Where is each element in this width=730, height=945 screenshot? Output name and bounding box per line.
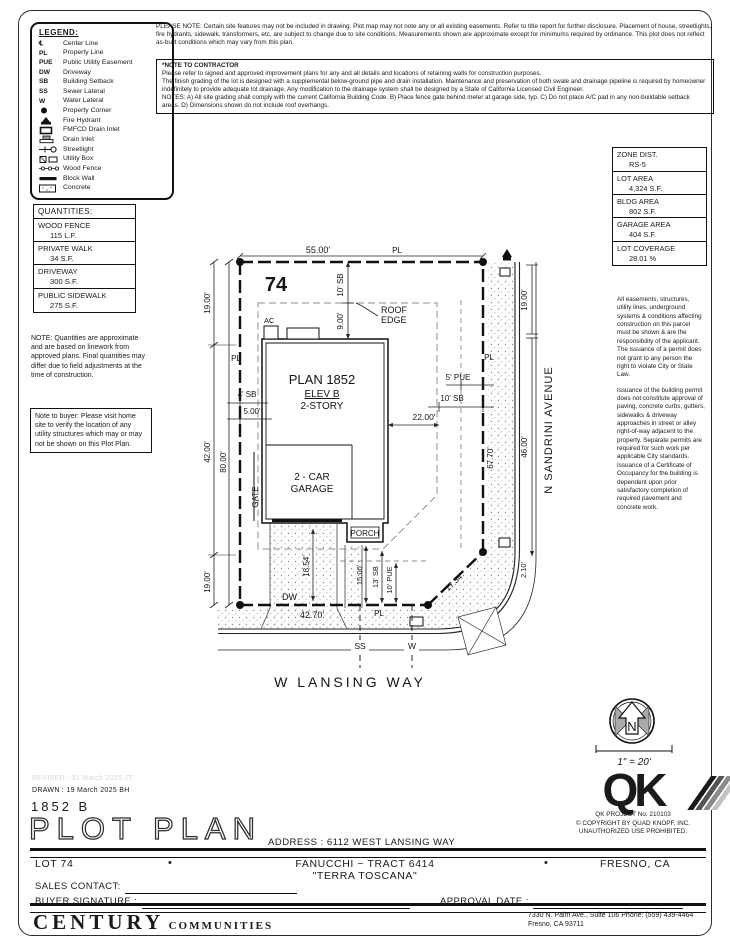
legend-box: LEGEND: ℄Center Line PLProperty Line PUE… xyxy=(30,22,174,200)
w-label: W xyxy=(408,641,416,651)
contractor-note-body: Please refer to signed and approved impr… xyxy=(162,70,708,110)
legend-item: Drain Inlet xyxy=(39,135,167,145)
gate-label: GATE xyxy=(251,486,260,507)
sb-bottom: 13' SB xyxy=(371,566,380,588)
qk-logo-stripes xyxy=(687,776,730,810)
legend-item: Wood Fence xyxy=(39,164,167,174)
legend-item: Block Wall xyxy=(39,174,167,184)
pl-label-left: PL xyxy=(231,354,241,363)
zone-row: BLDG AREA802 S.F. xyxy=(612,194,707,219)
lot-label: LOT 74 xyxy=(35,858,73,870)
legend-item: Utility Box xyxy=(39,155,167,165)
pl-label-top: PL xyxy=(392,246,402,255)
zone-row: LOT COVERAGE28.01 % xyxy=(612,241,707,266)
legend-item: ℄Center Line xyxy=(39,39,167,49)
dim-porch-pl: 15.00' xyxy=(355,564,364,585)
quantity-row: PUBLIC SIDEWALK275 S.F. xyxy=(33,288,136,313)
sb-left: 4' SB xyxy=(238,390,257,399)
title-rule-top xyxy=(30,848,706,858)
legend-item: Property Corner xyxy=(39,106,167,116)
qk-use-notice: UNAUTHORIZED USE PROHIBITED. xyxy=(558,828,708,836)
compass-n: N xyxy=(627,719,636,734)
block-wall-icon xyxy=(39,174,63,183)
legend-item: DWDriveway xyxy=(39,68,167,78)
house-footprint xyxy=(254,326,388,542)
story-label: 2-STORY xyxy=(301,401,344,412)
concrete-icon xyxy=(39,184,63,193)
contractor-note-box: *NOTE TO CONTRACTOR Please refer to sign… xyxy=(156,59,714,114)
quantity-row: PRIVATE WALK34 S.F. xyxy=(33,241,136,266)
drain-inlet-box xyxy=(500,268,510,276)
legend-item: SSSewer Lateral xyxy=(39,87,167,97)
qk-logo: QK xyxy=(603,770,664,811)
sb-right: 10' SB xyxy=(440,394,463,403)
driveway-symbol: DW xyxy=(39,69,63,77)
site-address: ADDRESS : 6112 WEST LANSING WAY xyxy=(268,837,455,848)
separator-bullet: • xyxy=(544,857,548,869)
garage-label-1: 2 - CAR xyxy=(294,472,330,483)
zone-row: LOT AREA4,324 S.F. xyxy=(612,171,707,196)
builder-address-line2: Fresno, CA 93711 xyxy=(528,920,693,929)
pue-bottom: 10' PUE xyxy=(385,566,394,593)
legend-item: WWater Lateral xyxy=(39,97,167,107)
dim-right-total: 67.70' xyxy=(486,447,495,469)
utility-box-icon xyxy=(39,155,63,164)
legend-item: Concrete xyxy=(39,183,167,193)
dim-left-top: 19.00' xyxy=(203,292,212,314)
dim-left-mid: 42.00' xyxy=(203,441,212,463)
north-compass: N 1" = 20' xyxy=(588,693,680,771)
water-symbol: W xyxy=(39,98,63,106)
legend-item: PUEPublic Utility Easement xyxy=(39,58,167,68)
dim-right-top: 19.00' xyxy=(520,289,529,311)
legal-paragraph-2: Issuance of the building permit does not… xyxy=(617,387,705,512)
ac-label: AC xyxy=(264,316,275,325)
roof-edge-leader xyxy=(356,303,378,316)
legend-item: Fire Hydrant xyxy=(39,116,167,126)
separator-bullet: • xyxy=(168,857,172,869)
dim-top: 55.00' xyxy=(306,245,331,255)
qk-block: QK QK PROJECT No. 210103 © COPYRIGHT BY … xyxy=(558,770,708,836)
legend-title: LEGEND: xyxy=(39,28,167,37)
builder-address: 7330 N. Palm Ave., Suite 106 Phone: (559… xyxy=(528,911,693,930)
zone-table: ZONE DIST.RS-5 LOT AREA4,324 S.F. BLDG A… xyxy=(612,149,707,266)
elev-label: ELEV B xyxy=(304,389,339,400)
legal-paragraph-1: All easements, structures, utility lines… xyxy=(617,296,705,380)
sewer-symbol: SS xyxy=(39,88,63,96)
contractor-note-title: *NOTE TO CONTRACTOR xyxy=(162,62,708,70)
please-note: PLEASE NOTE: Certain site features may n… xyxy=(156,23,713,48)
city-label: FRESNO, CA xyxy=(600,858,670,870)
zone-row: GARAGE AREA404 S.F. xyxy=(612,217,707,242)
roof-edge-2: EDGE xyxy=(381,315,407,325)
fmfcd-drain-inlet-icon xyxy=(39,126,63,135)
fire-hydrant-icon xyxy=(502,249,512,261)
dim-house-right: 22.00' xyxy=(413,412,436,422)
roof-offset: 9.00' xyxy=(336,312,345,330)
property-line-symbol: PL xyxy=(39,50,63,58)
sheet-title: PLOT PLAN xyxy=(29,811,262,847)
dw-label: DW xyxy=(282,592,297,602)
revised-date: REVISED : 31 March 2025 JT xyxy=(32,775,133,782)
street-name-bottom: W LANSING WAY xyxy=(274,674,426,690)
left-offset: 5.00' xyxy=(243,407,261,416)
pl-label-bottom: PL xyxy=(374,609,384,618)
brand-century: CENTURY xyxy=(33,910,164,934)
porch-label: PORCH xyxy=(351,529,380,538)
dim-bottom: 42.70' xyxy=(300,610,325,620)
fire-hydrant-icon xyxy=(39,116,63,125)
setback-symbol: SB xyxy=(39,78,63,86)
legal-text: All easements, structures, utility lines… xyxy=(617,296,705,519)
quantities-table: QUANTITIES: WOOD FENCE115 L.F. PRIVATE W… xyxy=(33,206,136,313)
legend-item: PLProperty Line xyxy=(39,49,167,59)
roof-edge-1: ROOF xyxy=(381,305,408,315)
quantities-note: NOTE: Quantities are approximate and are… xyxy=(31,334,147,380)
garage-label-2: GARAGE xyxy=(291,484,334,495)
ss-label: SS xyxy=(354,641,366,651)
dim-left-total: 80.00' xyxy=(219,451,228,473)
plot-drawing: 74 55.00' PL PL PL PL 19.00' 42.00' 19.0… xyxy=(185,243,565,700)
plan-label: PLAN 1852 xyxy=(289,372,356,387)
lot-number: 74 xyxy=(265,274,288,296)
drain-inlet-icon xyxy=(39,135,63,145)
qk-copyright: © COPYRIGHT BY QUAD KNOPF, INC. xyxy=(558,820,708,828)
builder-address-line1: 7330 N. Palm Ave., Suite 106 Phone: (559… xyxy=(528,911,693,920)
builder-brand: CENTURY COMMUNITIES xyxy=(33,910,273,935)
streetlight-icon xyxy=(39,145,63,154)
tract-label: FANUCCHI ~ TRACT 6414 xyxy=(250,858,480,870)
zone-row: ZONE DIST.RS-5 xyxy=(612,147,707,172)
dim-corner-curb: 2.10' xyxy=(519,561,528,578)
legend-item: SBBuilding Setback xyxy=(39,77,167,87)
water-meter-box xyxy=(499,538,510,547)
drawn-date: DRAWN : 19 March 2025 BH xyxy=(32,787,130,794)
centerline-symbol: ℄ xyxy=(39,40,63,48)
brand-communities: COMMUNITIES xyxy=(169,920,274,932)
legend-item: FMFCD Drain Inlet xyxy=(39,125,167,135)
sb-top: 10' SB xyxy=(336,273,345,296)
quantity-row: WOOD FENCE115 L.F. xyxy=(33,218,136,243)
wood-fence-icon xyxy=(39,164,63,173)
pue-right: 5' PUE xyxy=(446,373,471,382)
street-name-right: N SANDRINI AVENUE xyxy=(543,366,555,493)
dim-left-bot: 19.00' xyxy=(203,571,212,593)
pue-symbol: PUE xyxy=(39,59,63,67)
legend-item: Streetlight xyxy=(39,145,167,155)
property-corner-icon xyxy=(39,106,63,115)
dim-walk: 18.54' xyxy=(302,555,311,577)
dim-right-front: 46.00' xyxy=(520,436,529,458)
pl-label-right: PL xyxy=(484,353,494,362)
quantity-row: DRIVEWAY300 S.F. xyxy=(33,264,136,289)
buyer-note-box: Note to buyer: Please visit home site to… xyxy=(30,408,152,453)
